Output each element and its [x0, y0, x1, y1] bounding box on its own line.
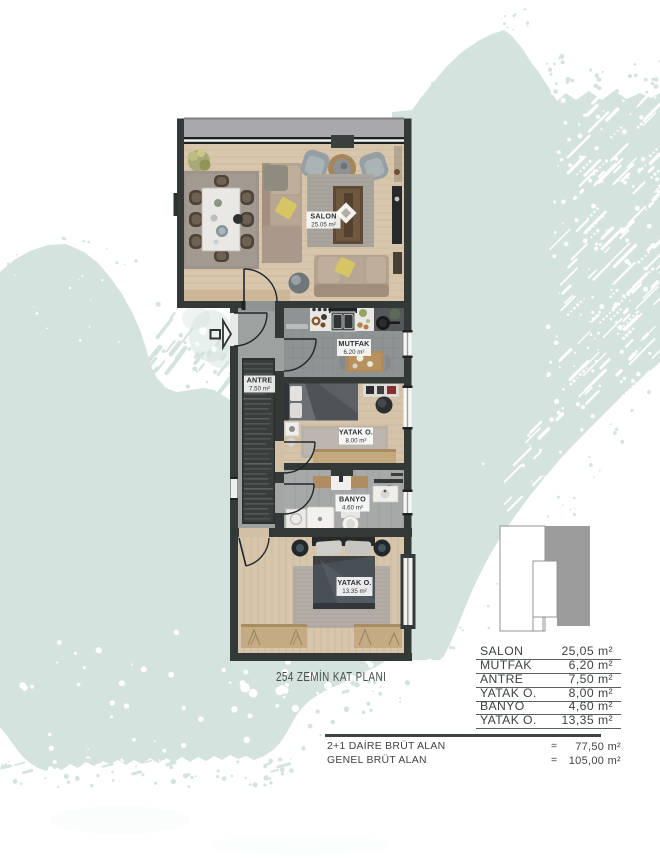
svg-text:MUTFAK: MUTFAK	[338, 339, 370, 348]
svg-text:BANYO: BANYO	[339, 495, 366, 504]
svg-text:4.60 m²: 4.60 m²	[342, 505, 363, 512]
svg-text:13.35 m²: 13.35 m²	[342, 588, 366, 595]
svg-text:25.05 m²: 25.05 m²	[311, 222, 335, 229]
svg-text:ANTRE: ANTRE	[247, 376, 273, 385]
svg-text:YATAK O.: YATAK O.	[337, 578, 371, 587]
svg-text:7.50 m²: 7.50 m²	[249, 386, 270, 393]
svg-text:SALON: SALON	[310, 212, 336, 221]
svg-text:8.00 m²: 8.00 m²	[346, 438, 367, 445]
svg-text:6.20 m²: 6.20 m²	[344, 349, 365, 356]
svg-text:YATAK O.: YATAK O.	[339, 428, 373, 437]
